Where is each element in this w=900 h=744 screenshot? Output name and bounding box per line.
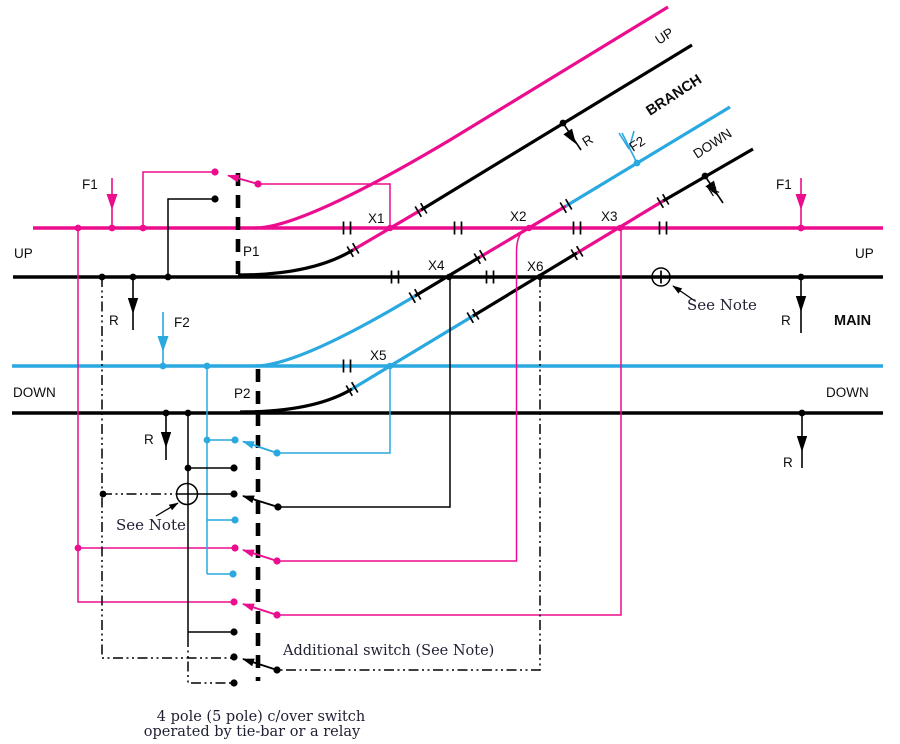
- feed-arrows: [107, 131, 807, 364]
- fifth-pole-contact-dot: [230, 679, 237, 686]
- return-down-left-label: R: [144, 432, 154, 447]
- dot: [204, 363, 211, 370]
- pole2-x4-wire: [278, 277, 450, 507]
- dot: [140, 225, 147, 232]
- dot: [702, 173, 709, 180]
- pole3-contact-dot: [231, 544, 238, 551]
- f1-left-arrowhead-icon: [107, 194, 118, 210]
- additional-contact-dot: [230, 653, 237, 660]
- dot: [109, 225, 116, 232]
- return-branch-up-head-icon: [563, 129, 576, 144]
- return-up-left-head-icon: [128, 298, 138, 314]
- dot: [185, 410, 192, 417]
- dot: [160, 363, 167, 370]
- p1-label: P1: [243, 244, 260, 259]
- dot: [799, 410, 806, 417]
- down-left-label: DOWN: [13, 385, 56, 400]
- pole2-pivot-dot: [274, 503, 281, 510]
- dot: [229, 570, 236, 577]
- p1-contact-dot: [211, 168, 218, 175]
- x6-label: X6: [527, 259, 544, 274]
- f2-branch-label: F2: [626, 133, 647, 154]
- dot: [798, 225, 805, 232]
- up-branch-track-line: [421, 45, 692, 210]
- additional-switch-x6-wire: [278, 277, 540, 670]
- fifth-pole-stub-wire: [188, 637, 234, 683]
- p2-label: P2: [234, 386, 251, 401]
- down-branch-label: DOWN: [690, 126, 734, 162]
- return-up-right-label: R: [781, 313, 791, 328]
- down-branch-catenary-curve: [255, 296, 415, 366]
- return-down-left-head-icon: [161, 432, 171, 448]
- pole4-x3-wire: [277, 228, 621, 615]
- p1-track-contact-dot: [211, 195, 218, 202]
- x4-dot: [446, 274, 452, 280]
- dot: [231, 516, 238, 523]
- pole1-contact-dot: [231, 436, 238, 443]
- dot: [560, 120, 567, 127]
- pole3-pivot-dot: [273, 557, 280, 564]
- see-note-switch-pointer: [156, 503, 178, 516]
- return-down-right-label: R: [783, 455, 793, 470]
- pole2-contact-dot: [230, 490, 237, 497]
- branch-lines: [238, 7, 753, 412]
- x5-label: X5: [370, 348, 387, 363]
- dot: [230, 464, 237, 471]
- pole4-pivot-dot: [273, 611, 280, 618]
- return-down-right-head-icon: [797, 436, 807, 452]
- pole4-contact-dot: [230, 598, 237, 605]
- dot: [130, 274, 137, 281]
- return-up-right-head-icon: [796, 296, 806, 312]
- dot: [165, 274, 172, 281]
- ole-junction-sectioning-diagram: F1 F1 F2 F2 UP UP DOWN DOWN MAIN BRANCH …: [0, 0, 900, 744]
- dot: [204, 437, 211, 444]
- additional-pivot-dot: [273, 666, 280, 673]
- p1-pivot-dot: [254, 180, 261, 187]
- x1-label: X1: [368, 211, 385, 226]
- pole2-switch-arm: [243, 496, 278, 507]
- f1-right-arrowhead-icon: [796, 194, 807, 210]
- up-left-label: UP: [14, 246, 33, 261]
- dot: [75, 225, 82, 232]
- branch-label: BRANCH: [643, 72, 704, 120]
- main-label: MAIN: [834, 313, 871, 329]
- down-right-label: DOWN: [826, 385, 869, 400]
- note-symbols: [177, 268, 671, 505]
- dot: [185, 465, 192, 472]
- f2-left-label: F2: [174, 315, 190, 330]
- note-pointers: [156, 286, 695, 516]
- see-note-switch-label: See Note: [116, 516, 186, 534]
- x2-dot: [526, 225, 532, 231]
- dot: [230, 628, 237, 635]
- x3-dot: [617, 225, 623, 231]
- dot: [100, 491, 107, 498]
- x4-label: X4: [428, 258, 445, 273]
- up-branch-label: UP: [652, 25, 676, 48]
- return-up-left-label: R: [109, 313, 119, 328]
- x2-label: X2: [510, 209, 527, 224]
- f2-branch-dot: [634, 160, 641, 167]
- p1-switch-arm: [228, 176, 258, 185]
- return-branch-up-label: R: [579, 131, 596, 149]
- dot: [75, 545, 82, 552]
- see-note-main-label: See Note: [687, 296, 757, 314]
- caption-line2: operated by tie-bar or a relay: [144, 724, 361, 740]
- f1-left-label: F1: [82, 177, 98, 192]
- x6-overlap-segment: [473, 253, 577, 316]
- up-right-label: UP: [855, 246, 874, 261]
- x1-overlap-segment: [353, 210, 421, 250]
- dot: [798, 274, 805, 281]
- additional-switch-label: Additional switch (See Note): [282, 643, 494, 659]
- pole1-pivot-dot: [273, 449, 280, 456]
- p1-track-contact-wire: [168, 199, 215, 277]
- up-branch-catenary-curve: [255, 7, 668, 228]
- x6-dot: [537, 274, 543, 280]
- p1-catenary-contact-wire: [143, 172, 215, 228]
- x3-label: X3: [601, 209, 618, 224]
- dot: [99, 274, 106, 281]
- f2-left-arrowhead-icon: [158, 336, 169, 352]
- x5-dot: [387, 363, 393, 369]
- main-lines: [12, 228, 883, 413]
- diagram-canvas: F1 F1 F2 F2 UP UP DOWN DOWN MAIN BRANCH …: [0, 0, 900, 744]
- dot: [163, 410, 170, 417]
- caption-line1: 4 pole (5 pole) c/over switch: [157, 709, 366, 725]
- wiring: [78, 172, 621, 683]
- labels: F1 F1 F2 F2 UP UP DOWN DOWN MAIN BRANCH …: [13, 25, 874, 740]
- f1-right-label: F1: [776, 177, 792, 192]
- x1-dot: [387, 225, 393, 231]
